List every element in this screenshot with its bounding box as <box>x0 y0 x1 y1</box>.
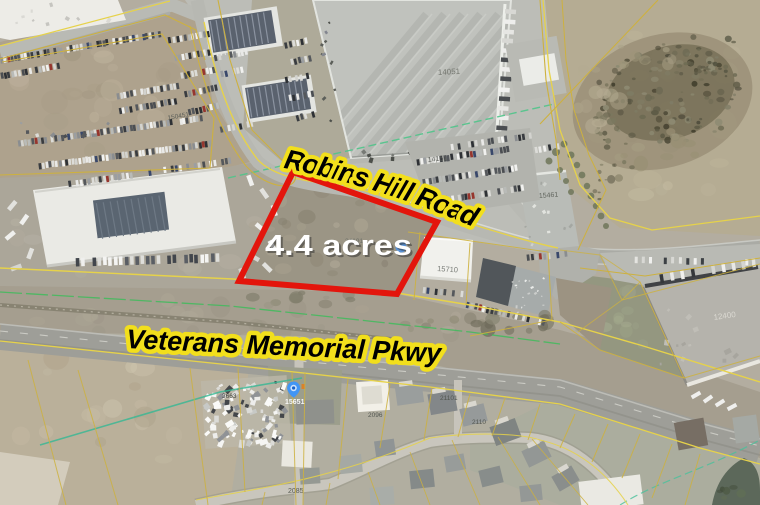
svg-text:15710: 15710 <box>437 264 458 274</box>
svg-text:15651: 15651 <box>285 399 305 406</box>
svg-text:4.4 acres: 4.4 acres <box>265 230 412 262</box>
svg-text:15461: 15461 <box>539 192 559 200</box>
svg-text:3663: 3663 <box>222 393 237 400</box>
svg-text:21101: 21101 <box>440 395 458 402</box>
svg-text:2110: 2110 <box>472 419 486 426</box>
svg-text:2096: 2096 <box>368 412 383 419</box>
svg-text:14051: 14051 <box>438 67 461 77</box>
